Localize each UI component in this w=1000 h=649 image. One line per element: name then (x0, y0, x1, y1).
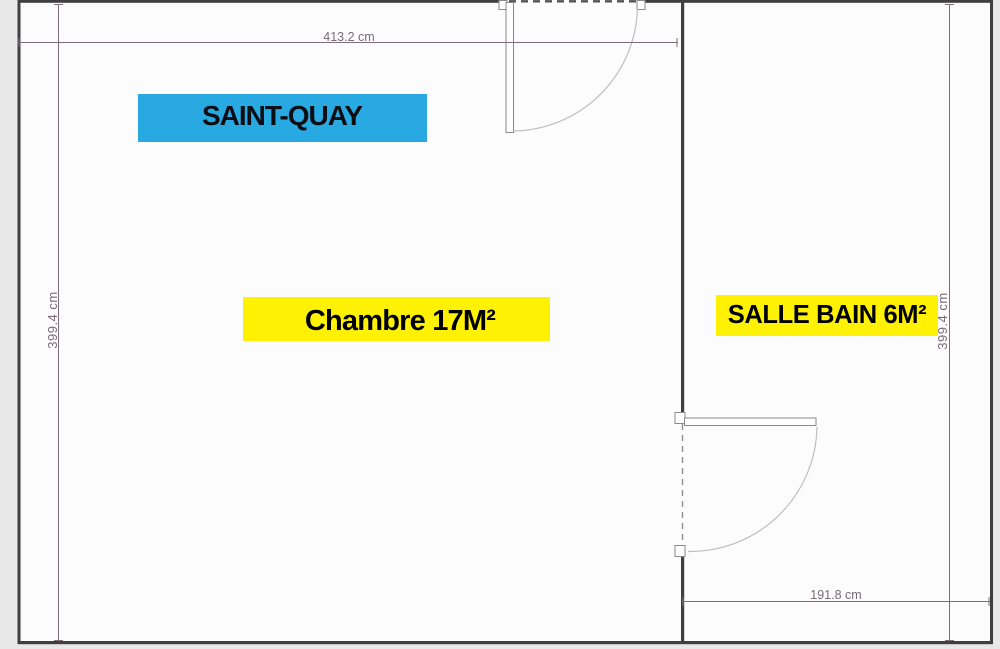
svg-text:399.4 cm: 399.4 cm (45, 291, 60, 348)
svg-text:SALLE BAIN 6M²: SALLE BAIN 6M² (728, 301, 926, 329)
svg-text:399.4 cm: 399.4 cm (935, 292, 950, 349)
svg-text:Chambre 17M²: Chambre 17M² (305, 305, 496, 337)
svg-text:413.2 cm: 413.2 cm (323, 30, 374, 44)
svg-text:191.8 cm: 191.8 cm (810, 588, 861, 602)
svg-text:SAINT-QUAY: SAINT-QUAY (202, 100, 363, 131)
